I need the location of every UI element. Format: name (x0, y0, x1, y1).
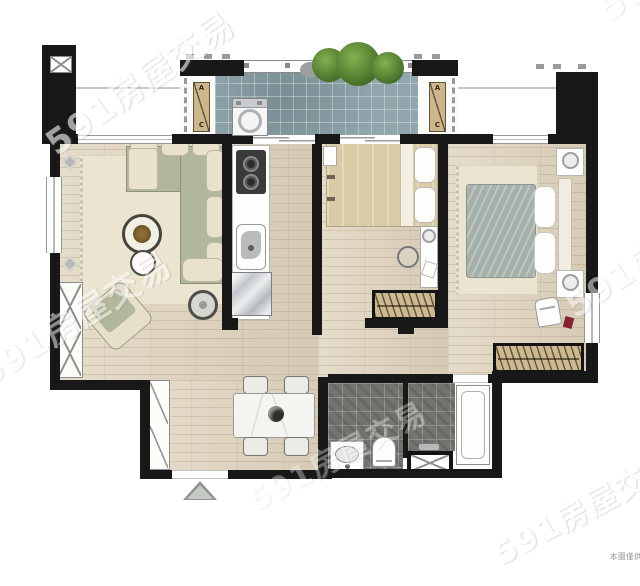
pillow (414, 187, 436, 223)
wall (328, 374, 453, 383)
refrigerator (230, 272, 272, 316)
diagonal-panel (150, 426, 168, 468)
wall (180, 60, 244, 76)
duct-x-icon (50, 56, 72, 73)
washer-control-panel (233, 99, 267, 108)
bathroom-door-opening (453, 374, 488, 383)
sofa-seat-pad (182, 258, 224, 282)
shoe-cabinet (148, 380, 170, 470)
entrance-arrow-inner (187, 485, 213, 499)
kitchen-sink (236, 224, 266, 270)
wall (492, 371, 598, 383)
wall (586, 343, 598, 377)
wall-tick (414, 54, 422, 59)
wall (365, 318, 448, 328)
chair-seat-line (539, 306, 555, 310)
wall (438, 140, 448, 328)
dining-chair (243, 376, 268, 394)
door-leaf (398, 328, 414, 334)
wall-tick (222, 54, 230, 59)
bed (466, 184, 536, 278)
x-panel (51, 57, 71, 72)
bathtub (456, 385, 490, 465)
boundary-line (458, 87, 556, 89)
wall (318, 469, 502, 478)
wall (50, 253, 60, 386)
table-lamp (562, 274, 579, 291)
balcony-edge-dashes (184, 78, 187, 132)
wall-tick (186, 54, 194, 59)
dining-chair (284, 437, 309, 456)
wall-tick (536, 64, 544, 69)
wall (556, 72, 598, 138)
stool (397, 246, 419, 268)
stove-burner (243, 174, 259, 190)
table-lamp (562, 152, 579, 169)
ac-label-c: C (199, 122, 204, 129)
shower-shelf (418, 443, 440, 451)
disclaimer-text: 本圖僅供 (610, 551, 640, 562)
slippers (327, 175, 335, 179)
ac-unit: A C (193, 82, 210, 132)
sliding-door (340, 135, 400, 144)
desk-lamp (422, 229, 436, 243)
window (493, 135, 548, 144)
washer-knob (257, 101, 262, 105)
vanity-sink (330, 441, 364, 471)
sofa-chaise-pad (128, 148, 158, 190)
wall-tick (204, 54, 212, 59)
bathtub-inner (461, 391, 485, 459)
toilet-seat-line (376, 460, 392, 462)
wardrobe (372, 290, 438, 320)
wall (228, 470, 332, 479)
wardrobe (493, 343, 584, 373)
table-centerpiece (268, 406, 284, 422)
bedroom-chair (534, 296, 562, 328)
shower-tile-floor (408, 383, 455, 451)
balcony-edge-dashes (452, 78, 455, 132)
pillow (534, 232, 556, 274)
x-panel (59, 331, 81, 376)
wall (222, 140, 232, 330)
sink-basin (335, 446, 359, 463)
washer-knob (236, 101, 241, 105)
floor-plan: A C A C 591房屋交易 591房屋交易 591房屋交易 591房屋交易 … (0, 0, 640, 586)
tv-cabinet (57, 282, 83, 378)
window (584, 293, 600, 343)
wall-tick (553, 64, 561, 69)
wall (150, 470, 172, 479)
diagonal-panel (150, 382, 168, 424)
ac-unit: A C (429, 82, 446, 132)
wall (312, 140, 322, 335)
window (78, 135, 172, 144)
sliding-door (253, 135, 315, 144)
x-panel (59, 284, 81, 329)
ac-label-a: A (435, 85, 440, 92)
bed-sheet-fold (400, 144, 413, 226)
wall (140, 380, 150, 479)
coffee-table-centerpiece (133, 225, 151, 243)
wall (50, 140, 60, 177)
wall-tick (432, 54, 440, 59)
wall (50, 380, 150, 390)
wall (222, 318, 238, 330)
ac-label-a: A (199, 85, 204, 92)
washer-drum (238, 109, 262, 133)
boundary-line (76, 87, 180, 89)
wall (586, 138, 598, 293)
sink-faucet (248, 245, 254, 251)
wall (318, 377, 328, 478)
dining-chair (243, 437, 268, 456)
slippers (327, 197, 335, 201)
shower-partition (403, 383, 408, 458)
pillow (414, 147, 436, 183)
ac-label-c: C (435, 122, 440, 129)
wall (412, 60, 458, 76)
watermark: 591房屋交易 (586, 0, 640, 32)
wall (492, 374, 502, 478)
dining-chair (284, 376, 309, 394)
stove-burner (243, 156, 259, 172)
plant (372, 52, 404, 84)
pillow (534, 186, 556, 228)
nightstand (323, 146, 337, 166)
entry-door-opening (172, 470, 228, 479)
washing-machine (232, 98, 268, 136)
window (46, 177, 62, 253)
wall-tick (578, 64, 586, 69)
nesting-table (130, 250, 156, 276)
toilet (372, 437, 396, 467)
side-table-dot (199, 301, 207, 309)
